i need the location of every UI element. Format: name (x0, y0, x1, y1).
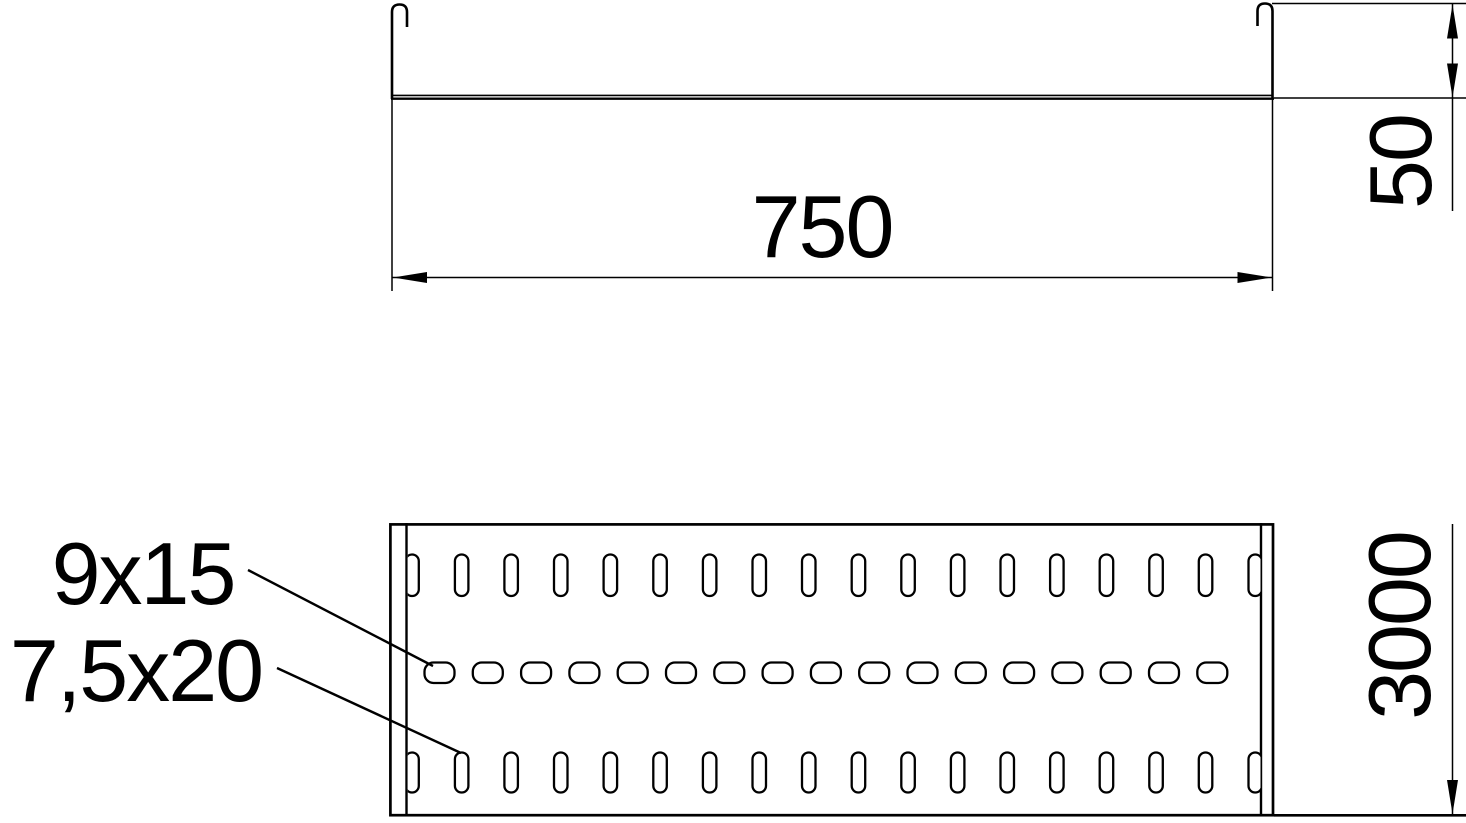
bottom-slot-row-slot (852, 753, 866, 793)
arrow-right (1238, 272, 1272, 283)
middle-slot-row-slot (1004, 663, 1034, 684)
technical-drawing-canvas: 750 50 3000 9x15 7,5x20 (0, 0, 1466, 823)
slot-callout-edge: 7,5x20 (0, 625, 281, 717)
middle-slot-row-slot (1197, 663, 1227, 684)
top-slot-row-slot (604, 555, 618, 597)
bottom-slot-row-slot (703, 753, 717, 793)
arrow-up (1447, 5, 1458, 39)
bottom-slot-row-slot (1001, 753, 1015, 793)
bottom-slot-row-slot (1050, 753, 1064, 793)
bottom-slot-row-slot (455, 753, 469, 793)
middle-slot-row-slot (956, 663, 986, 684)
bottom-slot-row-slot (554, 753, 568, 793)
top-slot-row-slot (703, 555, 717, 597)
top-slot-row-slot (455, 555, 469, 597)
bottom-slot-row-slot (1249, 753, 1263, 793)
middle-slot-row-slot (1149, 663, 1179, 684)
top-slot-row-slot (554, 555, 568, 597)
top-slot-row-slot (951, 555, 965, 597)
middle-slot-row-slot (1052, 663, 1082, 684)
bottom-slot-row-slot (604, 753, 618, 793)
dimension-label-height: 50 (1355, 92, 1447, 232)
bottom-slot-row-slot (901, 753, 915, 793)
profile-right-wall-hook (1258, 4, 1273, 100)
middle-slot-row-slot (569, 663, 599, 684)
top-slot-row-slot (1149, 555, 1163, 597)
middle-slot-row-slot (763, 663, 793, 684)
top-slot-row-slot (852, 555, 866, 597)
bottom-slot-row-slot (951, 753, 965, 793)
plan-view (390, 523, 1273, 816)
top-slot-row-slot (802, 555, 816, 597)
top-slot-row-slot (504, 555, 518, 597)
top-slot-row-slot (753, 555, 767, 597)
middle-slot-row-slot (618, 663, 648, 684)
profile-left-wall-hook (392, 5, 407, 100)
middle-slot-row-slot (811, 663, 841, 684)
top-slot-row-slot (901, 555, 915, 597)
middle-slot-row-slot (521, 663, 551, 684)
bottom-slot-row-slot (653, 753, 667, 793)
dimension-label-length: 3000 (1354, 506, 1446, 746)
top-slot-row-slot (1199, 555, 1213, 597)
bottom-slot-row-slot (504, 753, 518, 793)
top-slot-row-slot (1100, 555, 1114, 597)
middle-slot-row-slot (425, 663, 455, 684)
top-slot-row-slot (1249, 555, 1263, 597)
bottom-slot-row-slot (1199, 753, 1213, 793)
top-slot-row-slot (1050, 555, 1064, 597)
perforation-slots (405, 555, 1262, 793)
bottom-slot-row-slot (802, 753, 816, 793)
middle-slot-row-slot (859, 663, 889, 684)
middle-slot-row-slot (1101, 663, 1131, 684)
bottom-slot-row-slot (753, 753, 767, 793)
arrow-left (393, 272, 427, 283)
middle-slot-row-slot (666, 663, 696, 684)
middle-slot-row-slot (714, 663, 744, 684)
profile-view (391, 4, 1274, 100)
top-slot-row-slot (653, 555, 667, 597)
middle-slot-row-slot (908, 663, 938, 684)
arrow-down (1447, 64, 1458, 98)
arrow-down (1447, 780, 1458, 814)
dimension-label-width: 750 (702, 181, 942, 273)
top-slot-row-slot (1001, 555, 1015, 597)
middle-slot-row-slot (473, 663, 503, 684)
bottom-slot-row-slot (1149, 753, 1163, 793)
bottom-slot-row-slot (1100, 753, 1114, 793)
slot-callout-middle: 9x15 (23, 528, 263, 620)
